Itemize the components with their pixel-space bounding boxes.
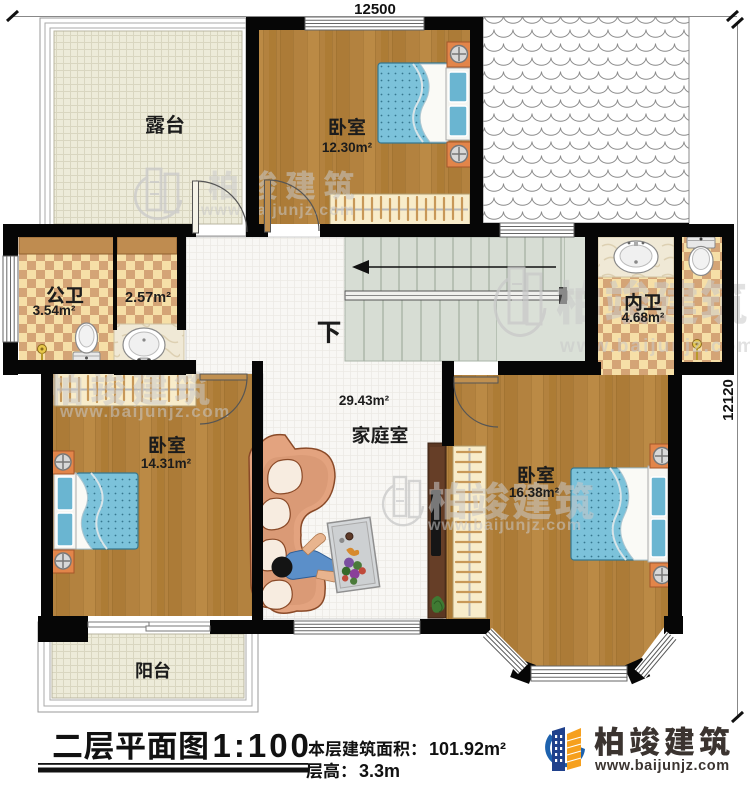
svg-text:12120: 12120 (720, 379, 737, 421)
svg-text:3.54m²: 3.54m² (33, 303, 76, 318)
svg-text:www.baijunjz.com: www.baijunjz.com (427, 517, 582, 534)
svg-text:www.baijunjz.com: www.baijunjz.com (594, 758, 730, 774)
svg-text:14.31m²: 14.31m² (141, 456, 192, 471)
svg-text:www.baijunjz.com: www.baijunjz.com (59, 402, 231, 421)
svg-text:2.57m²: 2.57m² (125, 290, 171, 306)
svg-text:29.43m²: 29.43m² (339, 393, 390, 408)
svg-text:1:100: 1:100 (213, 727, 312, 764)
svg-text:12500: 12500 (354, 1, 396, 18)
svg-text:3.3m: 3.3m (359, 761, 400, 781)
svg-text:16.38m²: 16.38m² (509, 485, 560, 500)
svg-text:4.68m²: 4.68m² (622, 310, 665, 325)
svg-text:12.30m²: 12.30m² (322, 140, 373, 155)
svg-text:101.92m²: 101.92m² (429, 739, 506, 759)
svg-text:www.baijunjz.com: www.baijunjz.com (200, 202, 355, 219)
